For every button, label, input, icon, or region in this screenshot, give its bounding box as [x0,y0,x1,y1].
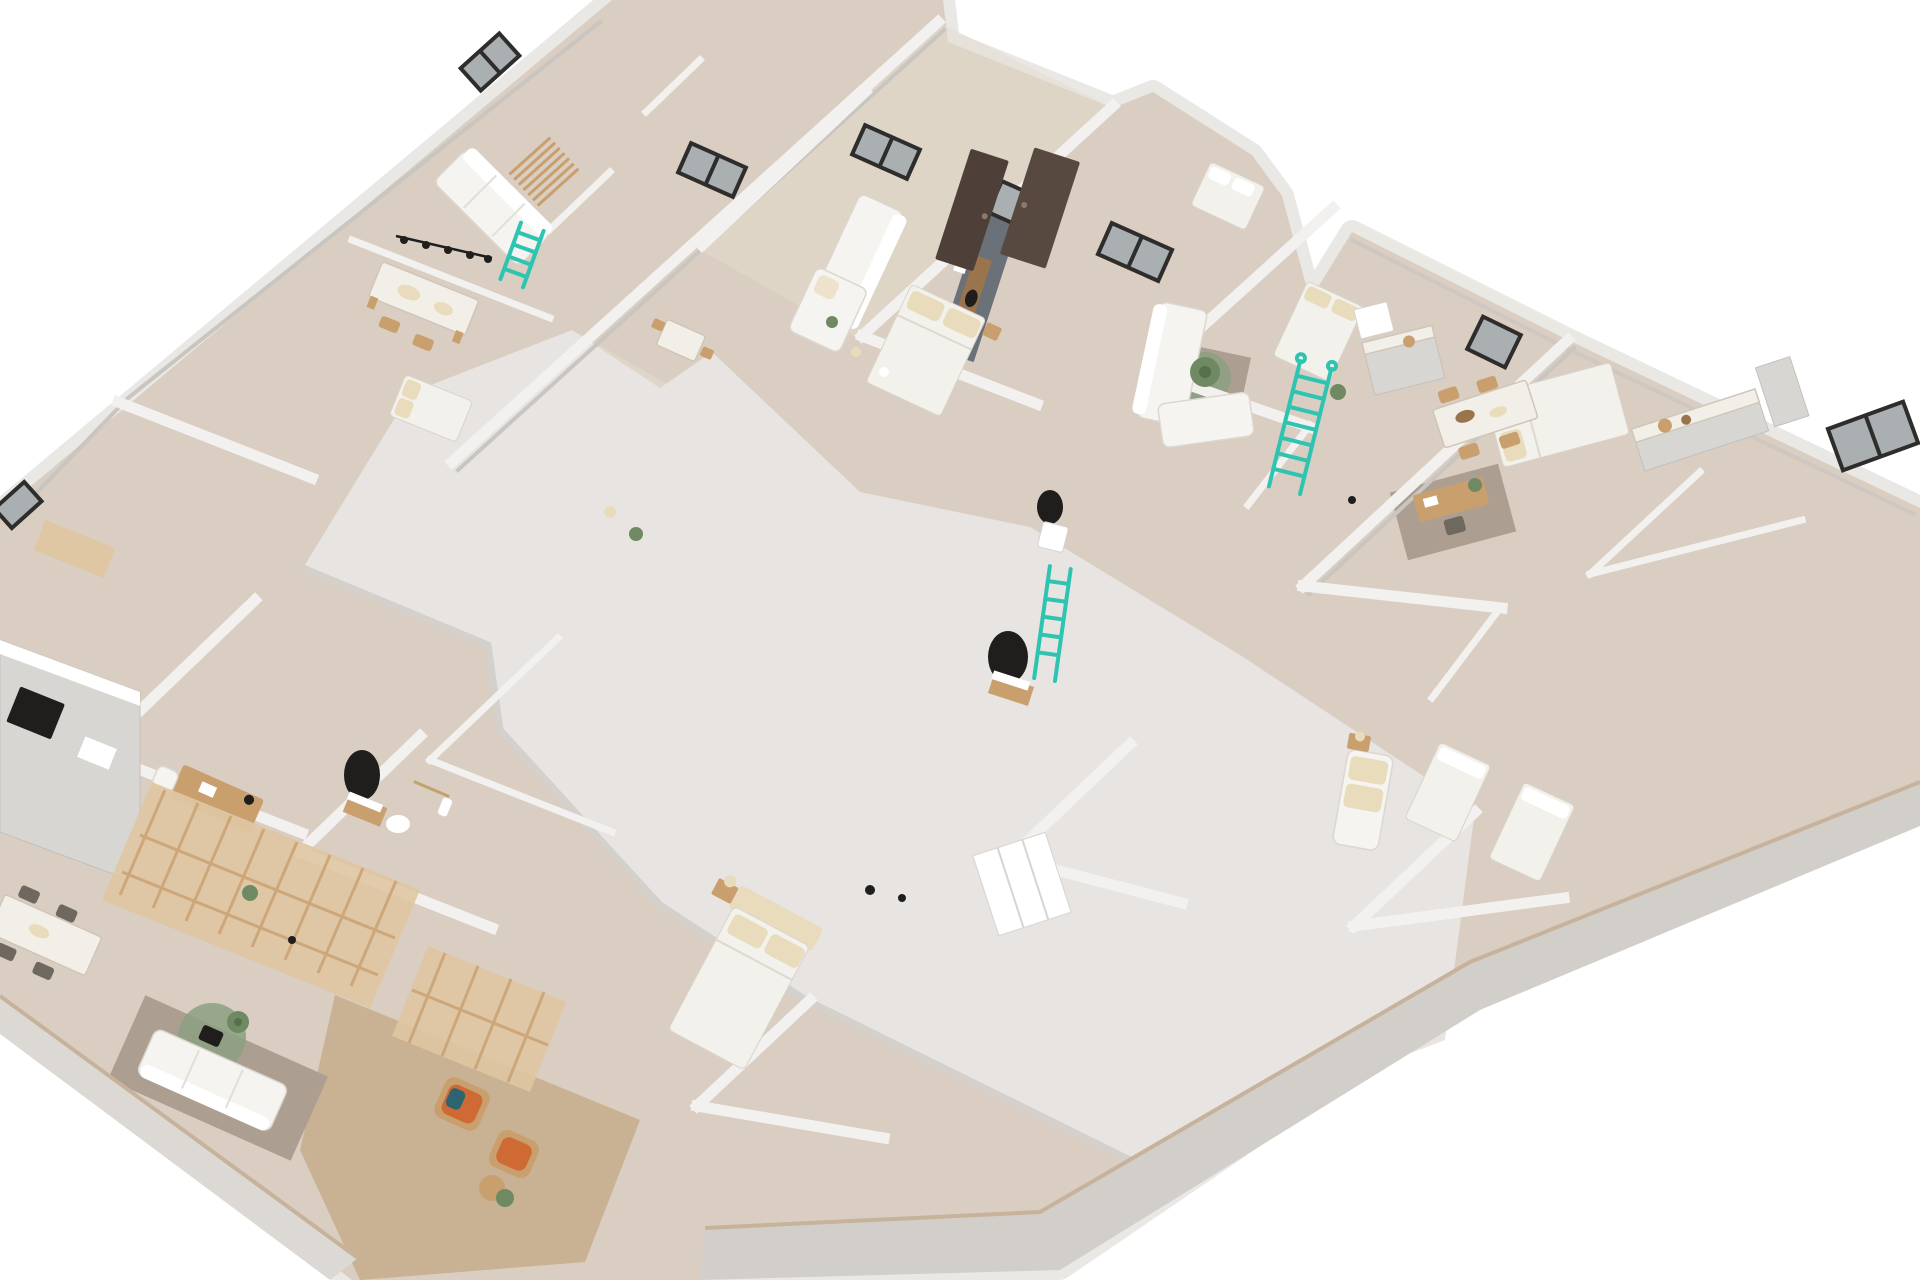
black-round-mirror [344,750,380,800]
wall-spot [1348,496,1356,504]
toilet [386,815,410,833]
black-round-mirror-small [1037,490,1063,524]
floor-plant [629,527,643,541]
floorplan-svg [0,0,1920,1280]
wall-spot [898,894,906,902]
wall-spot [865,885,875,895]
terrace-plant [496,1189,514,1207]
floorplan-render-canvas [0,0,1920,1280]
bath-plant [242,885,258,901]
wall-spot [288,936,296,944]
washing-machine [1037,521,1069,553]
vase [851,347,861,357]
shelf-plant [1330,384,1346,400]
vase [879,367,889,377]
potted-plant-on-rug [1190,357,1220,387]
shelf-plant [826,316,838,328]
large-window [1825,399,1920,473]
floor-lamp [604,506,616,518]
